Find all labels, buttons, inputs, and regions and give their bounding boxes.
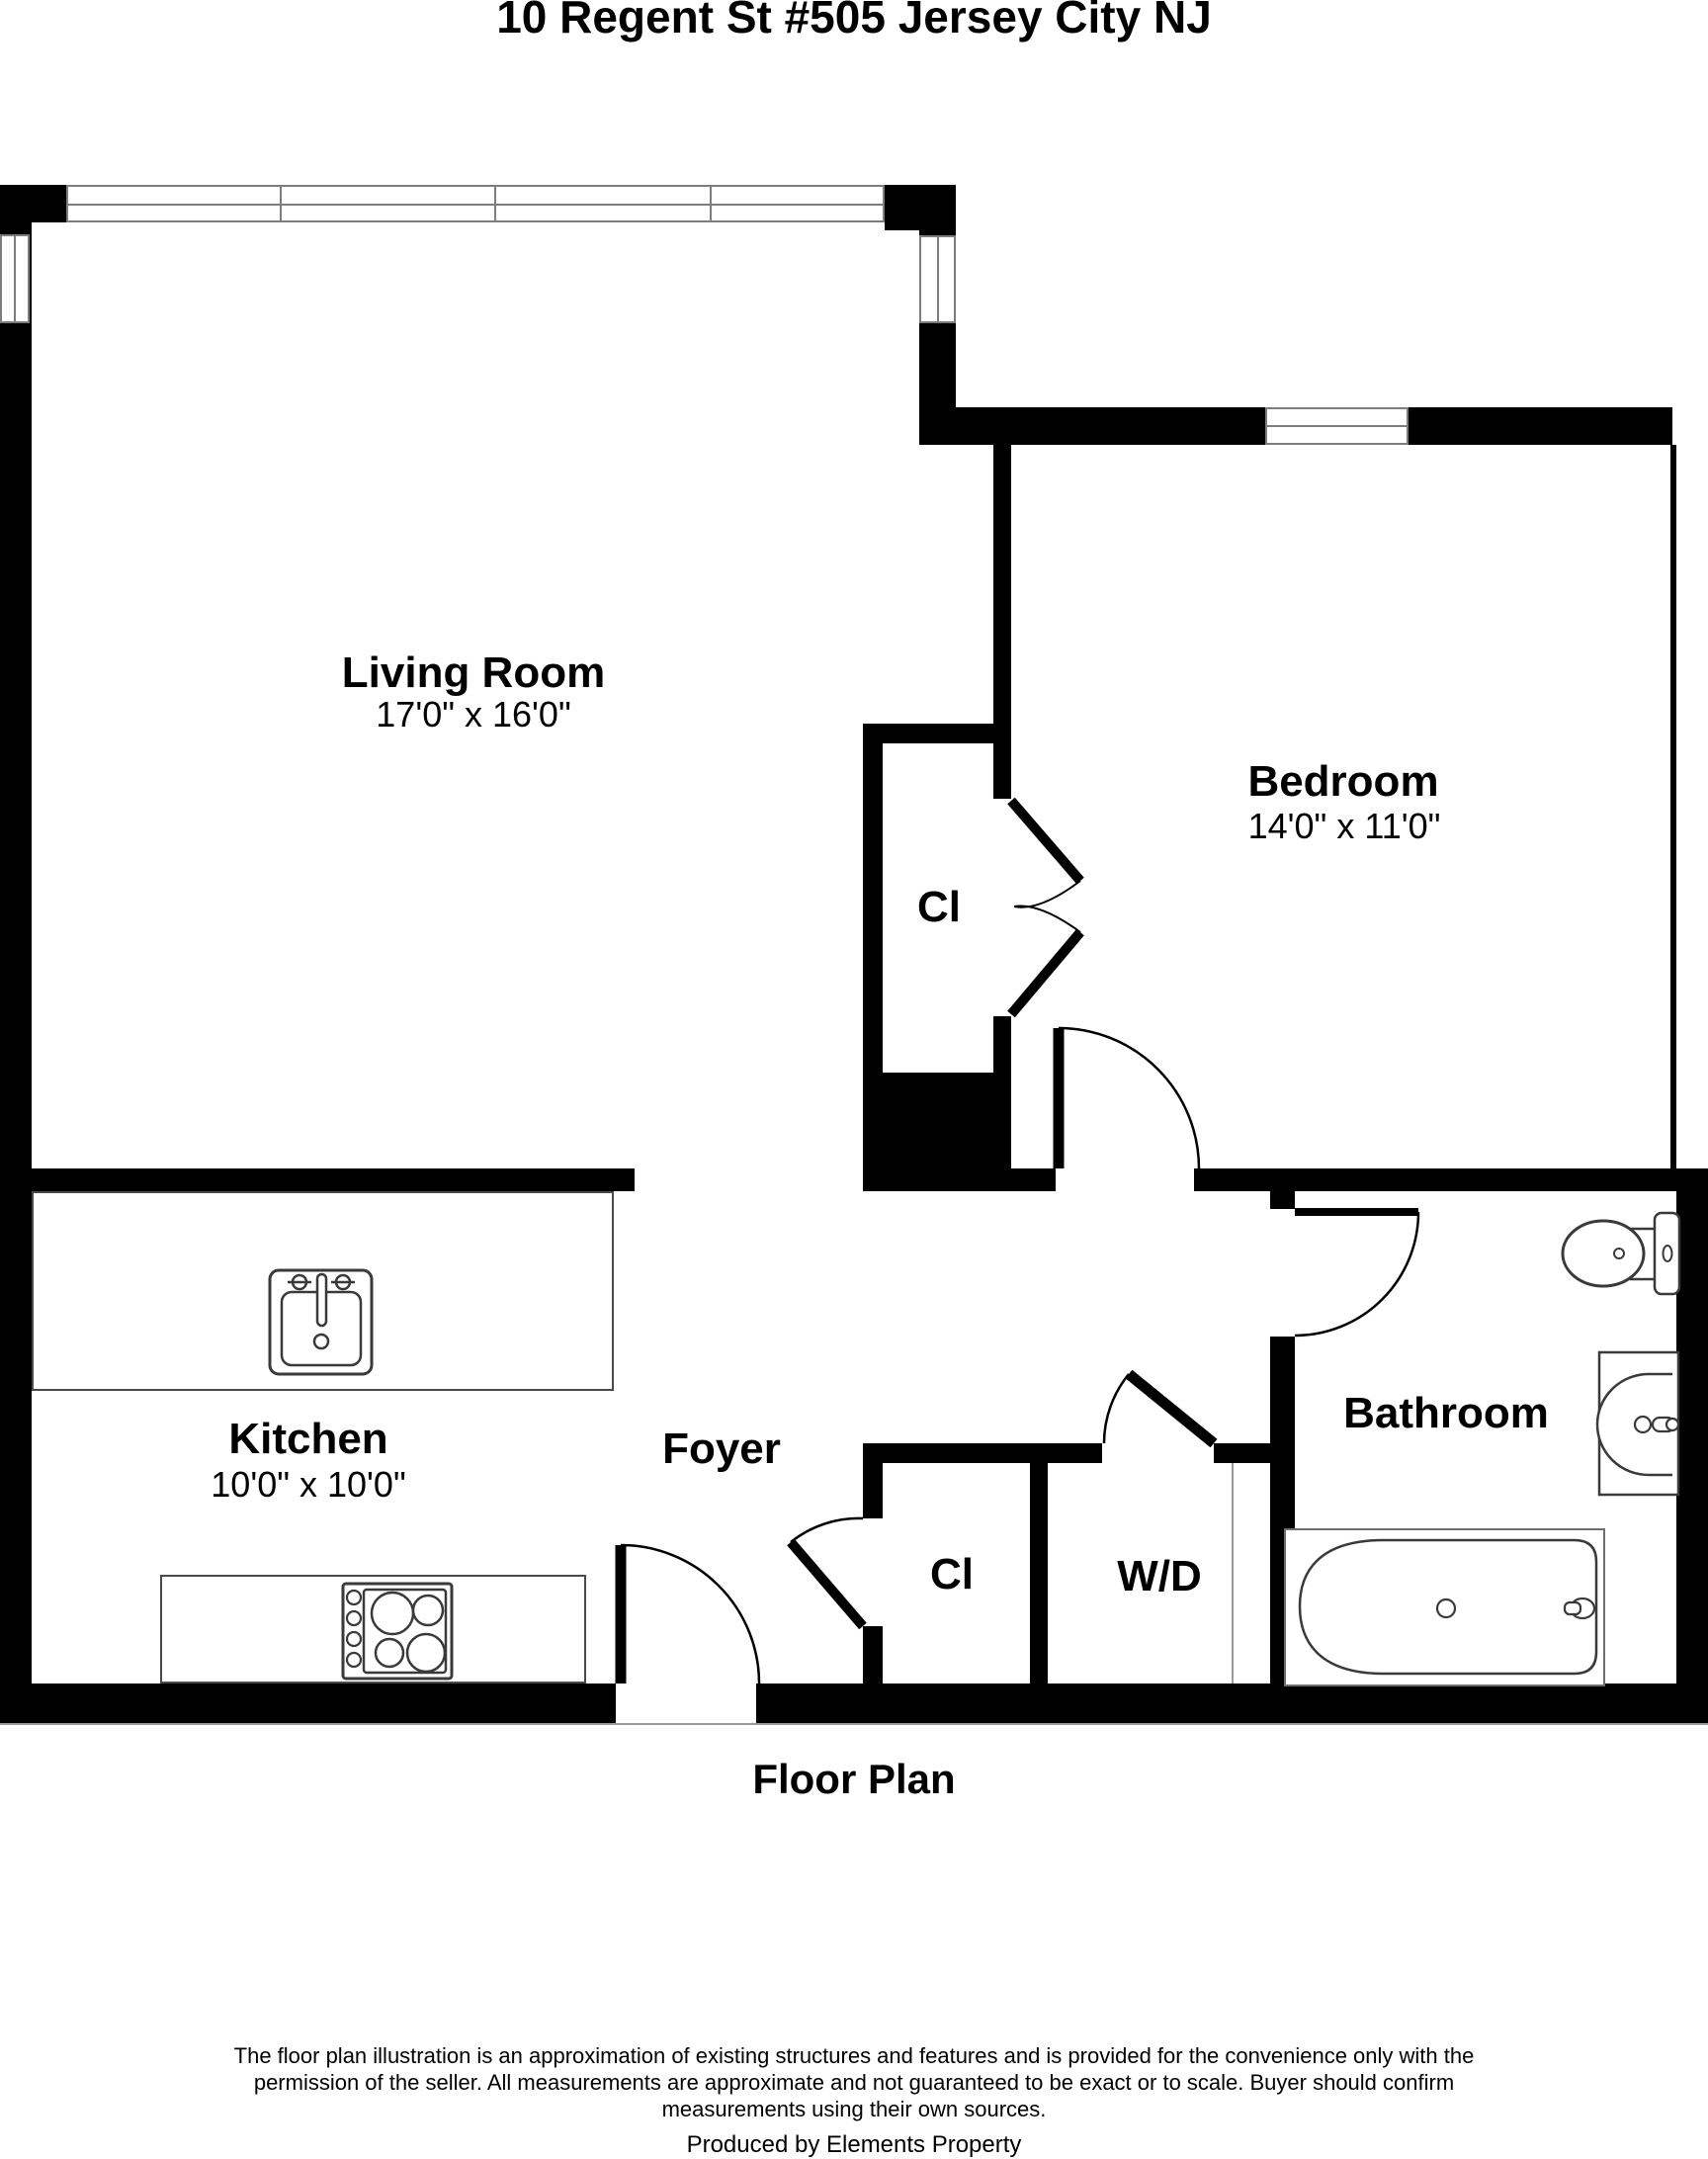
disclaimer-line-2: permission of the seller. All measuremen…: [0, 2069, 1708, 2096]
living-room-label: Living Room: [342, 651, 605, 695]
stove-icon: [343, 1584, 452, 1679]
disclaimer-line-3: measurements using their own sources.: [0, 2096, 1708, 2122]
disclaimer-line-1: The floor plan illustration is an approx…: [0, 2042, 1708, 2069]
entry-door-icon: [621, 1545, 759, 1684]
bathroom-label: Bathroom: [1343, 1392, 1549, 1435]
produced-by: Produced by Elements Property: [0, 2131, 1708, 2159]
kitchen-label: Kitchen: [228, 1418, 387, 1461]
bedroom-closet-label: Cl: [917, 886, 961, 929]
wd-door-icon: [1104, 1374, 1214, 1443]
living-room-dims: 17'0" x 16'0": [376, 697, 570, 733]
kitchen-sink-icon: [270, 1270, 372, 1374]
kitchen-dims: 10'0" x 10'0": [211, 1467, 405, 1503]
washer-dryer-label: W/D: [1117, 1555, 1202, 1598]
foyer-label: Foyer: [662, 1427, 781, 1471]
bathroom-door-icon: [1295, 1212, 1418, 1336]
bathroom-sink-icon: [1597, 1352, 1678, 1495]
floor-plan-caption: Floor Plan: [0, 1756, 1708, 1803]
bathtub-icon: [1285, 1529, 1604, 1685]
doors-and-fixtures: [0, 0, 1708, 2153]
foyer-closet-door-icon: [791, 1518, 863, 1626]
bedroom-closet-bifold-icon: [1011, 801, 1080, 1014]
bedroom-dims: 14'0" x 11'0": [1248, 809, 1441, 844]
foyer-closet-label: Cl: [930, 1553, 974, 1597]
toilet-icon: [1563, 1213, 1679, 1294]
bedroom-label: Bedroom: [1247, 760, 1438, 804]
floor-plan: 10 Regent St #505 Jersey City NJ: [0, 0, 1708, 2153]
bedroom-door-icon: [1059, 1028, 1199, 1168]
